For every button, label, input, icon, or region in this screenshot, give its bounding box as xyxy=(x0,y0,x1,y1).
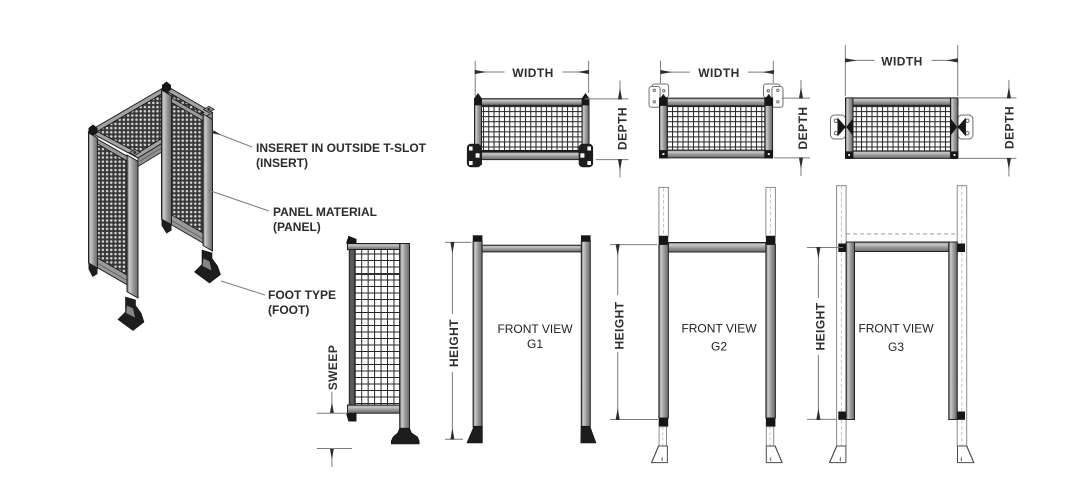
svg-text:(INSERT): (INSERT) xyxy=(256,156,308,170)
svg-text:HEIGHT: HEIGHT xyxy=(814,302,828,350)
svg-text:G1: G1 xyxy=(527,337,543,351)
svg-text:FRONT VIEW: FRONT VIEW xyxy=(858,322,934,336)
svg-text:WIDTH: WIDTH xyxy=(512,66,554,80)
svg-text:DEPTH: DEPTH xyxy=(1002,106,1016,149)
svg-text:WIDTH: WIDTH xyxy=(881,54,923,68)
svg-text:PANEL MATERIAL: PANEL MATERIAL xyxy=(273,205,377,219)
svg-text:FRONT VIEW: FRONT VIEW xyxy=(681,322,757,336)
svg-text:FOOT TYPE: FOOT TYPE xyxy=(268,288,336,302)
svg-text:FRONT VIEW: FRONT VIEW xyxy=(497,322,573,336)
svg-text:DEPTH: DEPTH xyxy=(796,107,810,150)
svg-text:WIDTH: WIDTH xyxy=(698,66,740,80)
svg-text:INSERET IN OUTSIDE T-SLOT: INSERET IN OUTSIDE T-SLOT xyxy=(256,141,427,155)
svg-text:HEIGHT: HEIGHT xyxy=(447,319,461,367)
svg-text:G3: G3 xyxy=(888,340,904,354)
svg-text:DEPTH: DEPTH xyxy=(615,107,629,150)
svg-text:(FOOT): (FOOT) xyxy=(268,303,309,317)
svg-text:(PANEL): (PANEL) xyxy=(273,220,321,234)
svg-text:HEIGHT: HEIGHT xyxy=(613,301,627,349)
svg-text:G2: G2 xyxy=(711,340,727,354)
svg-text:SWEEP: SWEEP xyxy=(326,345,340,391)
